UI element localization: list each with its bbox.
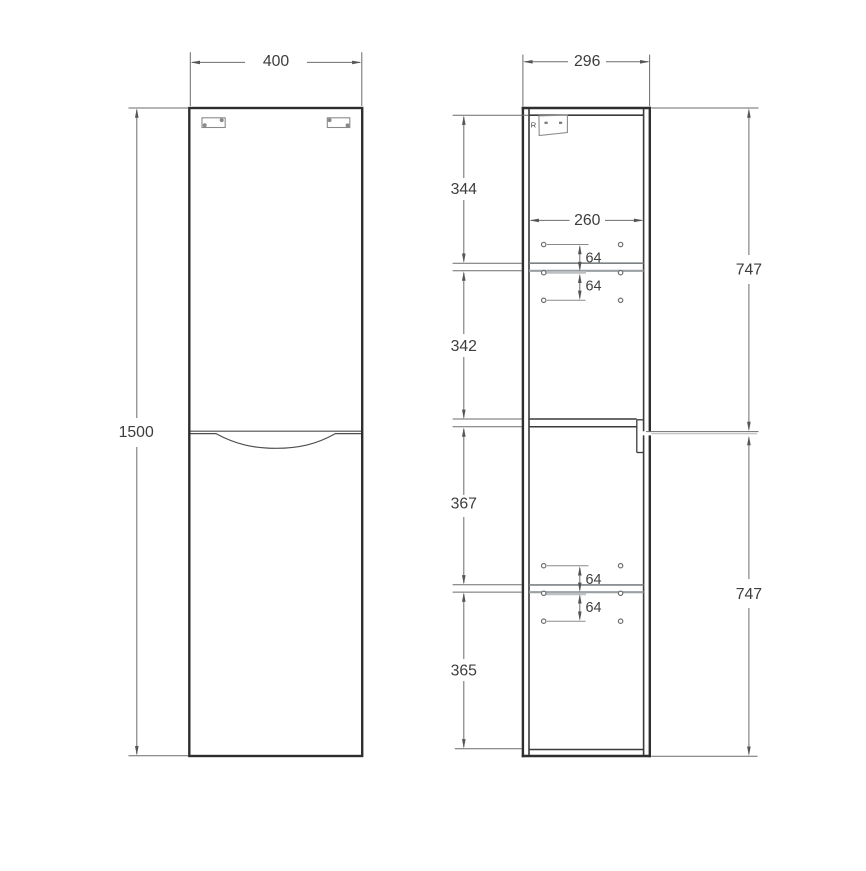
svg-text:296: 296	[574, 53, 601, 70]
svg-text:365: 365	[451, 662, 478, 679]
svg-text:64: 64	[586, 572, 602, 588]
svg-text:367: 367	[451, 495, 477, 512]
svg-text:R: R	[531, 121, 537, 130]
svg-text:400: 400	[263, 53, 290, 70]
svg-text:747: 747	[736, 586, 762, 603]
svg-text:344: 344	[451, 181, 478, 198]
svg-text:64: 64	[586, 279, 602, 295]
svg-text:342: 342	[451, 338, 477, 355]
svg-text:1500: 1500	[119, 424, 154, 441]
svg-text:747: 747	[736, 261, 762, 278]
svg-text:64: 64	[586, 600, 602, 616]
svg-text:260: 260	[574, 212, 601, 229]
svg-text:64: 64	[586, 251, 602, 267]
